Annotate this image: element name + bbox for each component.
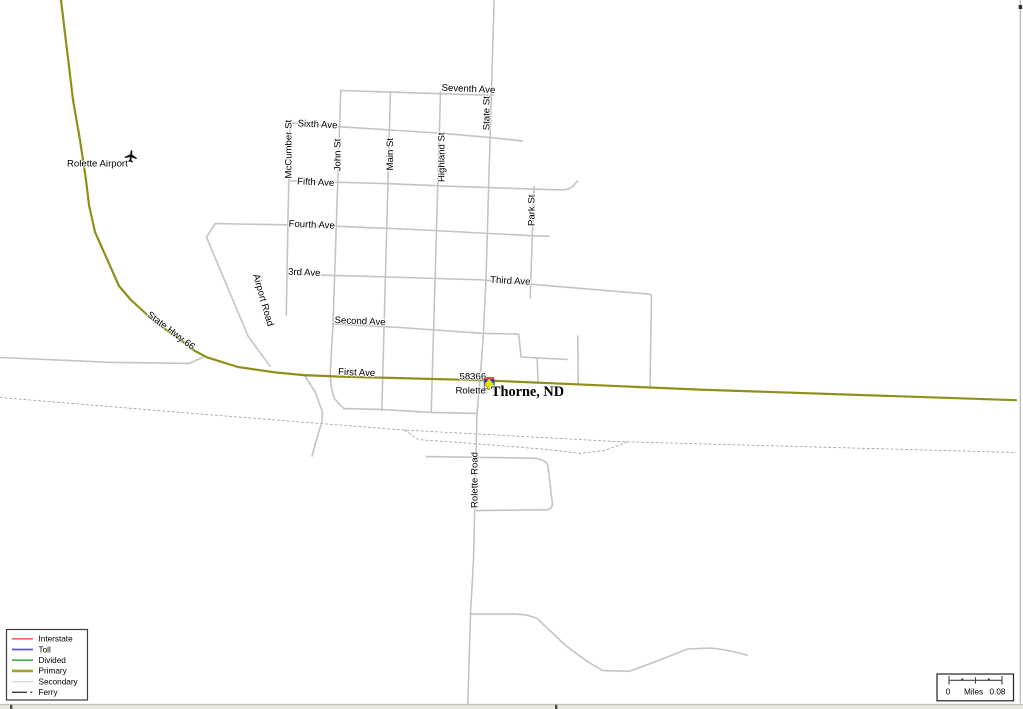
svg-text:0.08: 0.08: [990, 688, 1006, 697]
svg-text:Thorne, ND: Thorne, ND: [491, 384, 564, 400]
svg-text:3rd Ave: 3rd Ave: [288, 267, 321, 279]
svg-text:0: 0: [946, 688, 951, 697]
svg-text:Second Ave: Second Ave: [334, 315, 385, 328]
svg-text:John St: John St: [332, 138, 343, 171]
svg-text:Seventh Ave: Seventh Ave: [441, 83, 495, 96]
svg-text:Third Ave: Third Ave: [490, 275, 531, 288]
svg-text:Rolette Airport: Rolette Airport: [67, 159, 128, 170]
svg-text:Highland St: Highland St: [437, 132, 448, 182]
svg-text:Divided: Divided: [39, 656, 67, 665]
svg-text:Main St: Main St: [385, 138, 396, 171]
svg-text:Secondary: Secondary: [39, 677, 79, 686]
svg-text:Ferry: Ferry: [39, 688, 59, 697]
svg-text:State St: State St: [481, 96, 492, 130]
svg-text:Sixth Ave: Sixth Ave: [297, 118, 337, 131]
svg-text:58366: 58366: [460, 372, 487, 383]
svg-text:Primary: Primary: [39, 667, 68, 676]
svg-text:Toll: Toll: [39, 645, 51, 654]
svg-text:Fourth Ave: Fourth Ave: [288, 219, 335, 232]
svg-text:First Ave: First Ave: [338, 367, 376, 379]
svg-text:McCumber St: McCumber St: [283, 120, 294, 179]
svg-text:Park St: Park St: [527, 194, 538, 226]
svg-text:Rolette: Rolette: [456, 386, 486, 397]
svg-text:Fifth Ave: Fifth Ave: [297, 176, 335, 189]
svg-text:Interstate: Interstate: [39, 635, 74, 644]
svg-text:Miles: Miles: [964, 688, 983, 697]
svg-text:Rolette Road: Rolette Road: [470, 452, 481, 508]
